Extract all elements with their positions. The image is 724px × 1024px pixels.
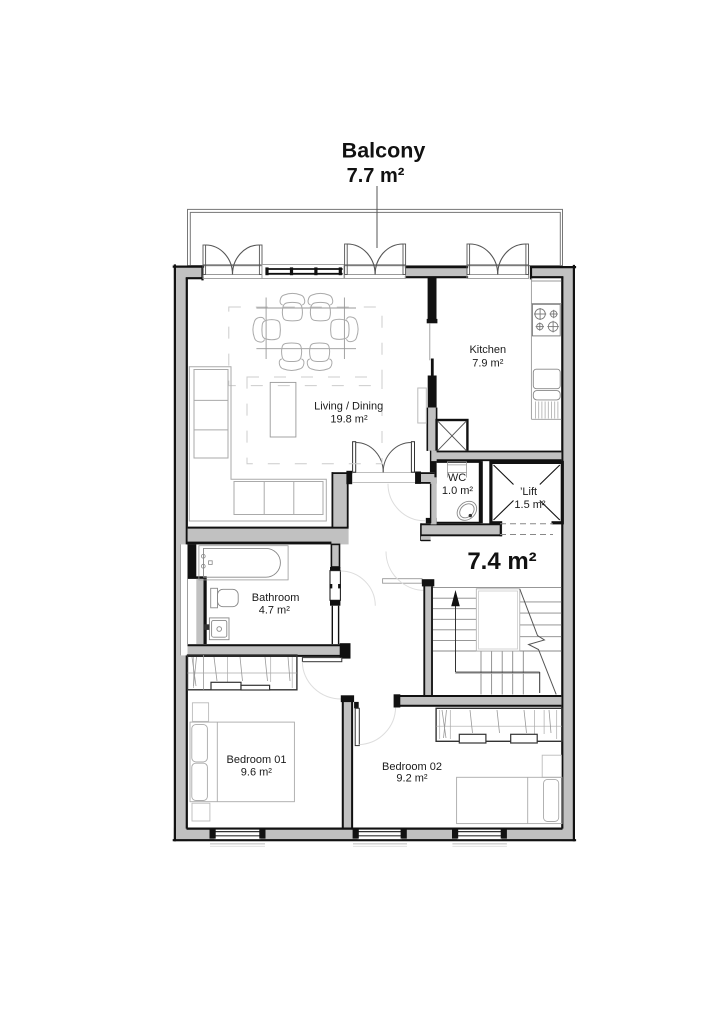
- svg-text:Bedroom 01: Bedroom 01: [227, 754, 287, 766]
- svg-text:19.8 m²: 19.8 m²: [330, 414, 368, 426]
- svg-text:Bathroom: Bathroom: [252, 592, 300, 604]
- svg-text:1.0 m²: 1.0 m²: [442, 485, 474, 497]
- svg-text:7.7 m²: 7.7 m²: [347, 165, 405, 187]
- svg-text:9.6 m²: 9.6 m²: [241, 767, 273, 779]
- svg-text:Living / Dining: Living / Dining: [314, 400, 383, 412]
- svg-text:7.4 m²: 7.4 m²: [467, 548, 536, 575]
- svg-text:’Lift: ’Lift: [520, 486, 537, 498]
- svg-text:Balcony: Balcony: [342, 139, 426, 163]
- svg-text:4.7 m²: 4.7 m²: [259, 605, 291, 617]
- svg-text:Kitchen: Kitchen: [469, 344, 506, 356]
- svg-text:7.9 m²: 7.9 m²: [472, 358, 504, 370]
- svg-text:Bedroom 02: Bedroom 02: [382, 761, 442, 773]
- svg-text:1.5 m²: 1.5 m²: [514, 499, 546, 511]
- svg-text:WC: WC: [448, 472, 466, 484]
- svg-text:9.2 m²: 9.2 m²: [396, 773, 428, 785]
